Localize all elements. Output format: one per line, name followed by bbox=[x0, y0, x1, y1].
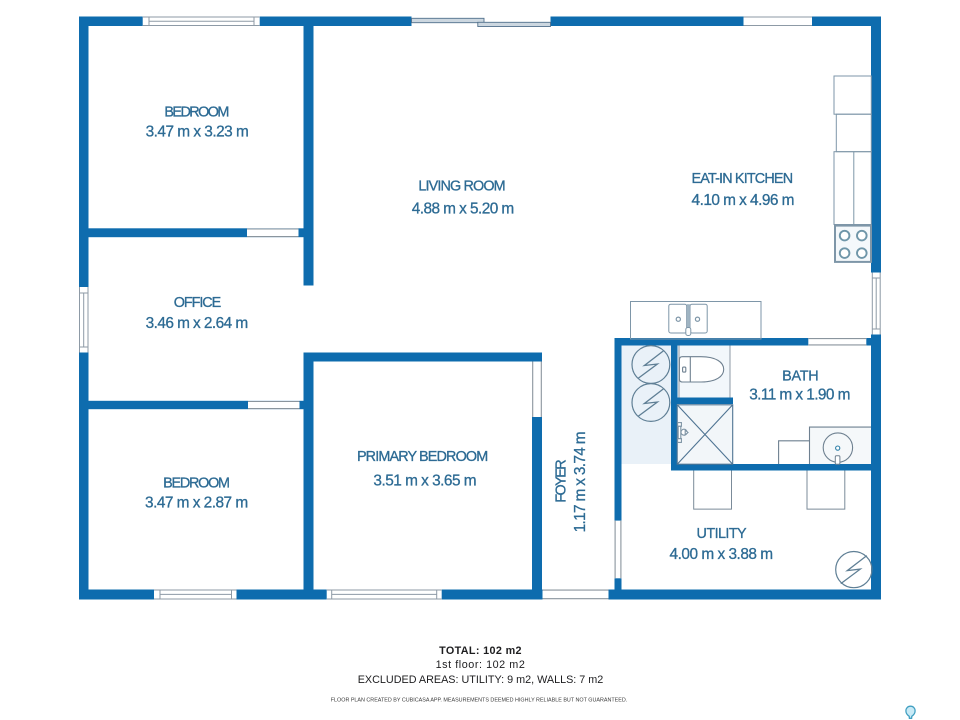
svg-text:1st floor: 102 m2: 1st floor: 102 m2 bbox=[436, 659, 526, 671]
svg-text:4.88 m x 5.20 m: 4.88 m x 5.20 m bbox=[412, 200, 515, 217]
svg-text:4.00 m x 3.88 m: 4.00 m x 3.88 m bbox=[670, 546, 774, 563]
svg-text:1.17 m x 3.74 m: 1.17 m x 3.74 m bbox=[572, 431, 589, 532]
svg-text:EXCLUDED AREAS: UTILITY: 9 m2,: EXCLUDED AREAS: UTILITY: 9 m2, WALLS: 7 … bbox=[358, 674, 604, 686]
svg-text:PRIMARY BEDROOM: PRIMARY BEDROOM bbox=[357, 449, 488, 465]
svg-text:UTILITY: UTILITY bbox=[697, 526, 747, 542]
svg-text:4.10 m x 4.96 m: 4.10 m x 4.96 m bbox=[692, 192, 795, 209]
svg-text:BATH: BATH bbox=[782, 369, 819, 385]
svg-text:3.11 m x 1.90 m: 3.11 m x 1.90 m bbox=[749, 387, 850, 404]
svg-text:BEDROOM: BEDROOM bbox=[163, 476, 230, 492]
svg-text:FOYER: FOYER bbox=[553, 459, 569, 502]
svg-text:FLOOR PLAN CREATED BY CUBICASA: FLOOR PLAN CREATED BY CUBICASA APP. MEAS… bbox=[331, 697, 627, 703]
svg-text:OFFICE: OFFICE bbox=[174, 295, 222, 311]
svg-text:3.47 m x 3.23 m: 3.47 m x 3.23 m bbox=[146, 124, 249, 141]
svg-text:BEDROOM: BEDROOM bbox=[164, 104, 229, 120]
svg-text:EAT-IN KITCHEN: EAT-IN KITCHEN bbox=[692, 171, 794, 187]
svg-text:LIVING ROOM: LIVING ROOM bbox=[418, 179, 505, 195]
svg-text:3.46 m x 2.64 m: 3.46 m x 2.64 m bbox=[146, 315, 249, 332]
svg-text:3.51 m x 3.65 m: 3.51 m x 3.65 m bbox=[373, 472, 476, 489]
svg-text:TOTAL: 102 m2: TOTAL: 102 m2 bbox=[439, 645, 522, 657]
svg-text:3.47 m x 2.87 m: 3.47 m x 2.87 m bbox=[145, 495, 248, 512]
